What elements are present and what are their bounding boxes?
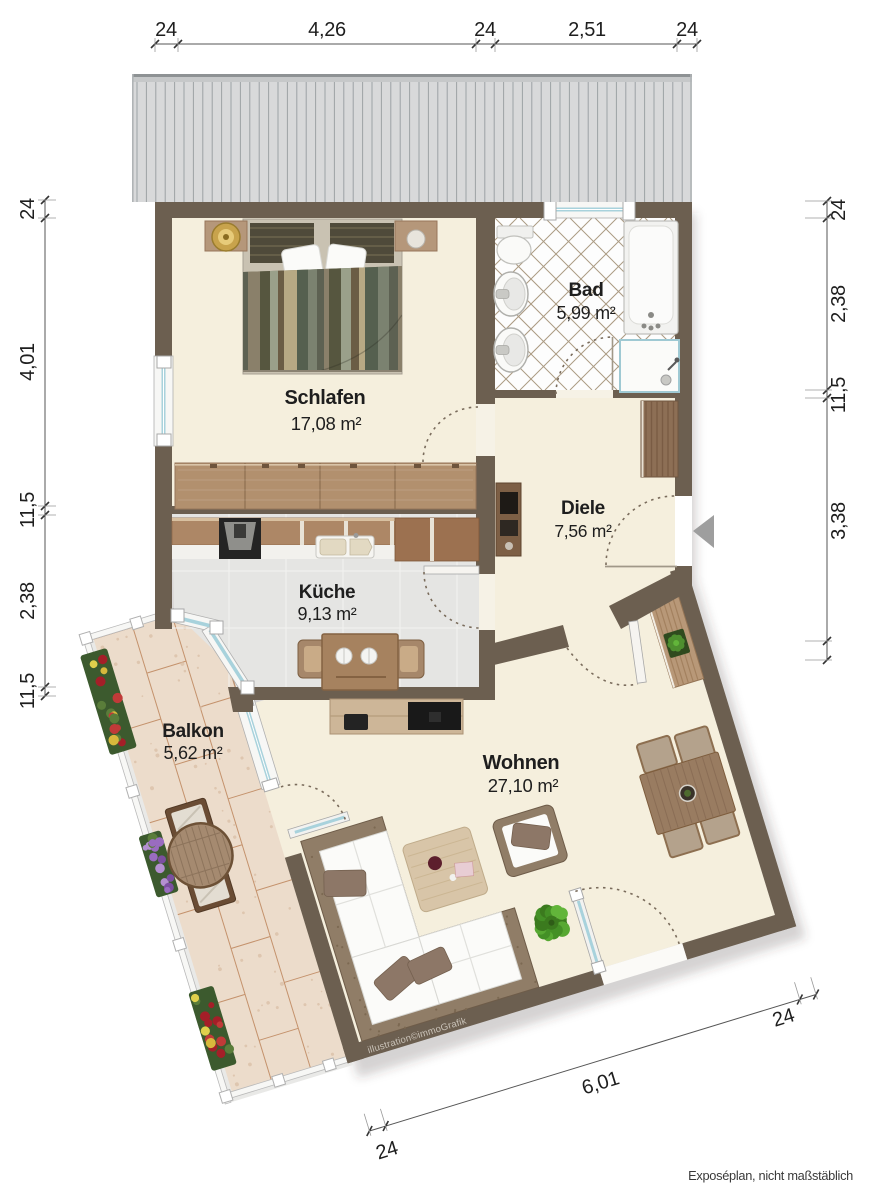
svg-text:2,38: 2,38 bbox=[17, 582, 39, 620]
svg-text:2,51: 2,51 bbox=[568, 19, 606, 41]
svg-text:24: 24 bbox=[676, 19, 698, 41]
svg-text:Schlafen: Schlafen bbox=[285, 387, 366, 409]
svg-text:2,38: 2,38 bbox=[828, 285, 850, 323]
svg-text:11,5: 11,5 bbox=[17, 492, 39, 528]
svg-text:Bad: Bad bbox=[569, 280, 604, 301]
svg-text:9,13 m²: 9,13 m² bbox=[298, 604, 357, 624]
svg-text:11,5: 11,5 bbox=[828, 377, 850, 413]
svg-text:17,08 m²: 17,08 m² bbox=[291, 413, 362, 434]
svg-text:27,10 m²: 27,10 m² bbox=[488, 775, 559, 796]
svg-text:5,62 m²: 5,62 m² bbox=[164, 743, 223, 763]
svg-text:24: 24 bbox=[828, 199, 850, 221]
svg-text:24: 24 bbox=[474, 19, 496, 41]
svg-text:24: 24 bbox=[17, 198, 39, 220]
svg-text:Exposéplan, nicht maßstäblich: Exposéplan, nicht maßstäblich bbox=[688, 1168, 853, 1183]
svg-text:24: 24 bbox=[155, 19, 177, 41]
svg-text:5,99 m²: 5,99 m² bbox=[557, 303, 616, 323]
svg-text:7,56 m²: 7,56 m² bbox=[554, 521, 612, 541]
svg-text:Küche: Küche bbox=[299, 582, 356, 603]
svg-text:4,01: 4,01 bbox=[17, 343, 39, 381]
svg-text:11,5: 11,5 bbox=[17, 673, 39, 709]
svg-text:3,38: 3,38 bbox=[828, 502, 850, 540]
svg-text:Balkon: Balkon bbox=[162, 721, 224, 742]
svg-text:Diele: Diele bbox=[561, 498, 605, 519]
svg-text:Wohnen: Wohnen bbox=[483, 752, 560, 774]
svg-text:4,26: 4,26 bbox=[308, 19, 346, 41]
